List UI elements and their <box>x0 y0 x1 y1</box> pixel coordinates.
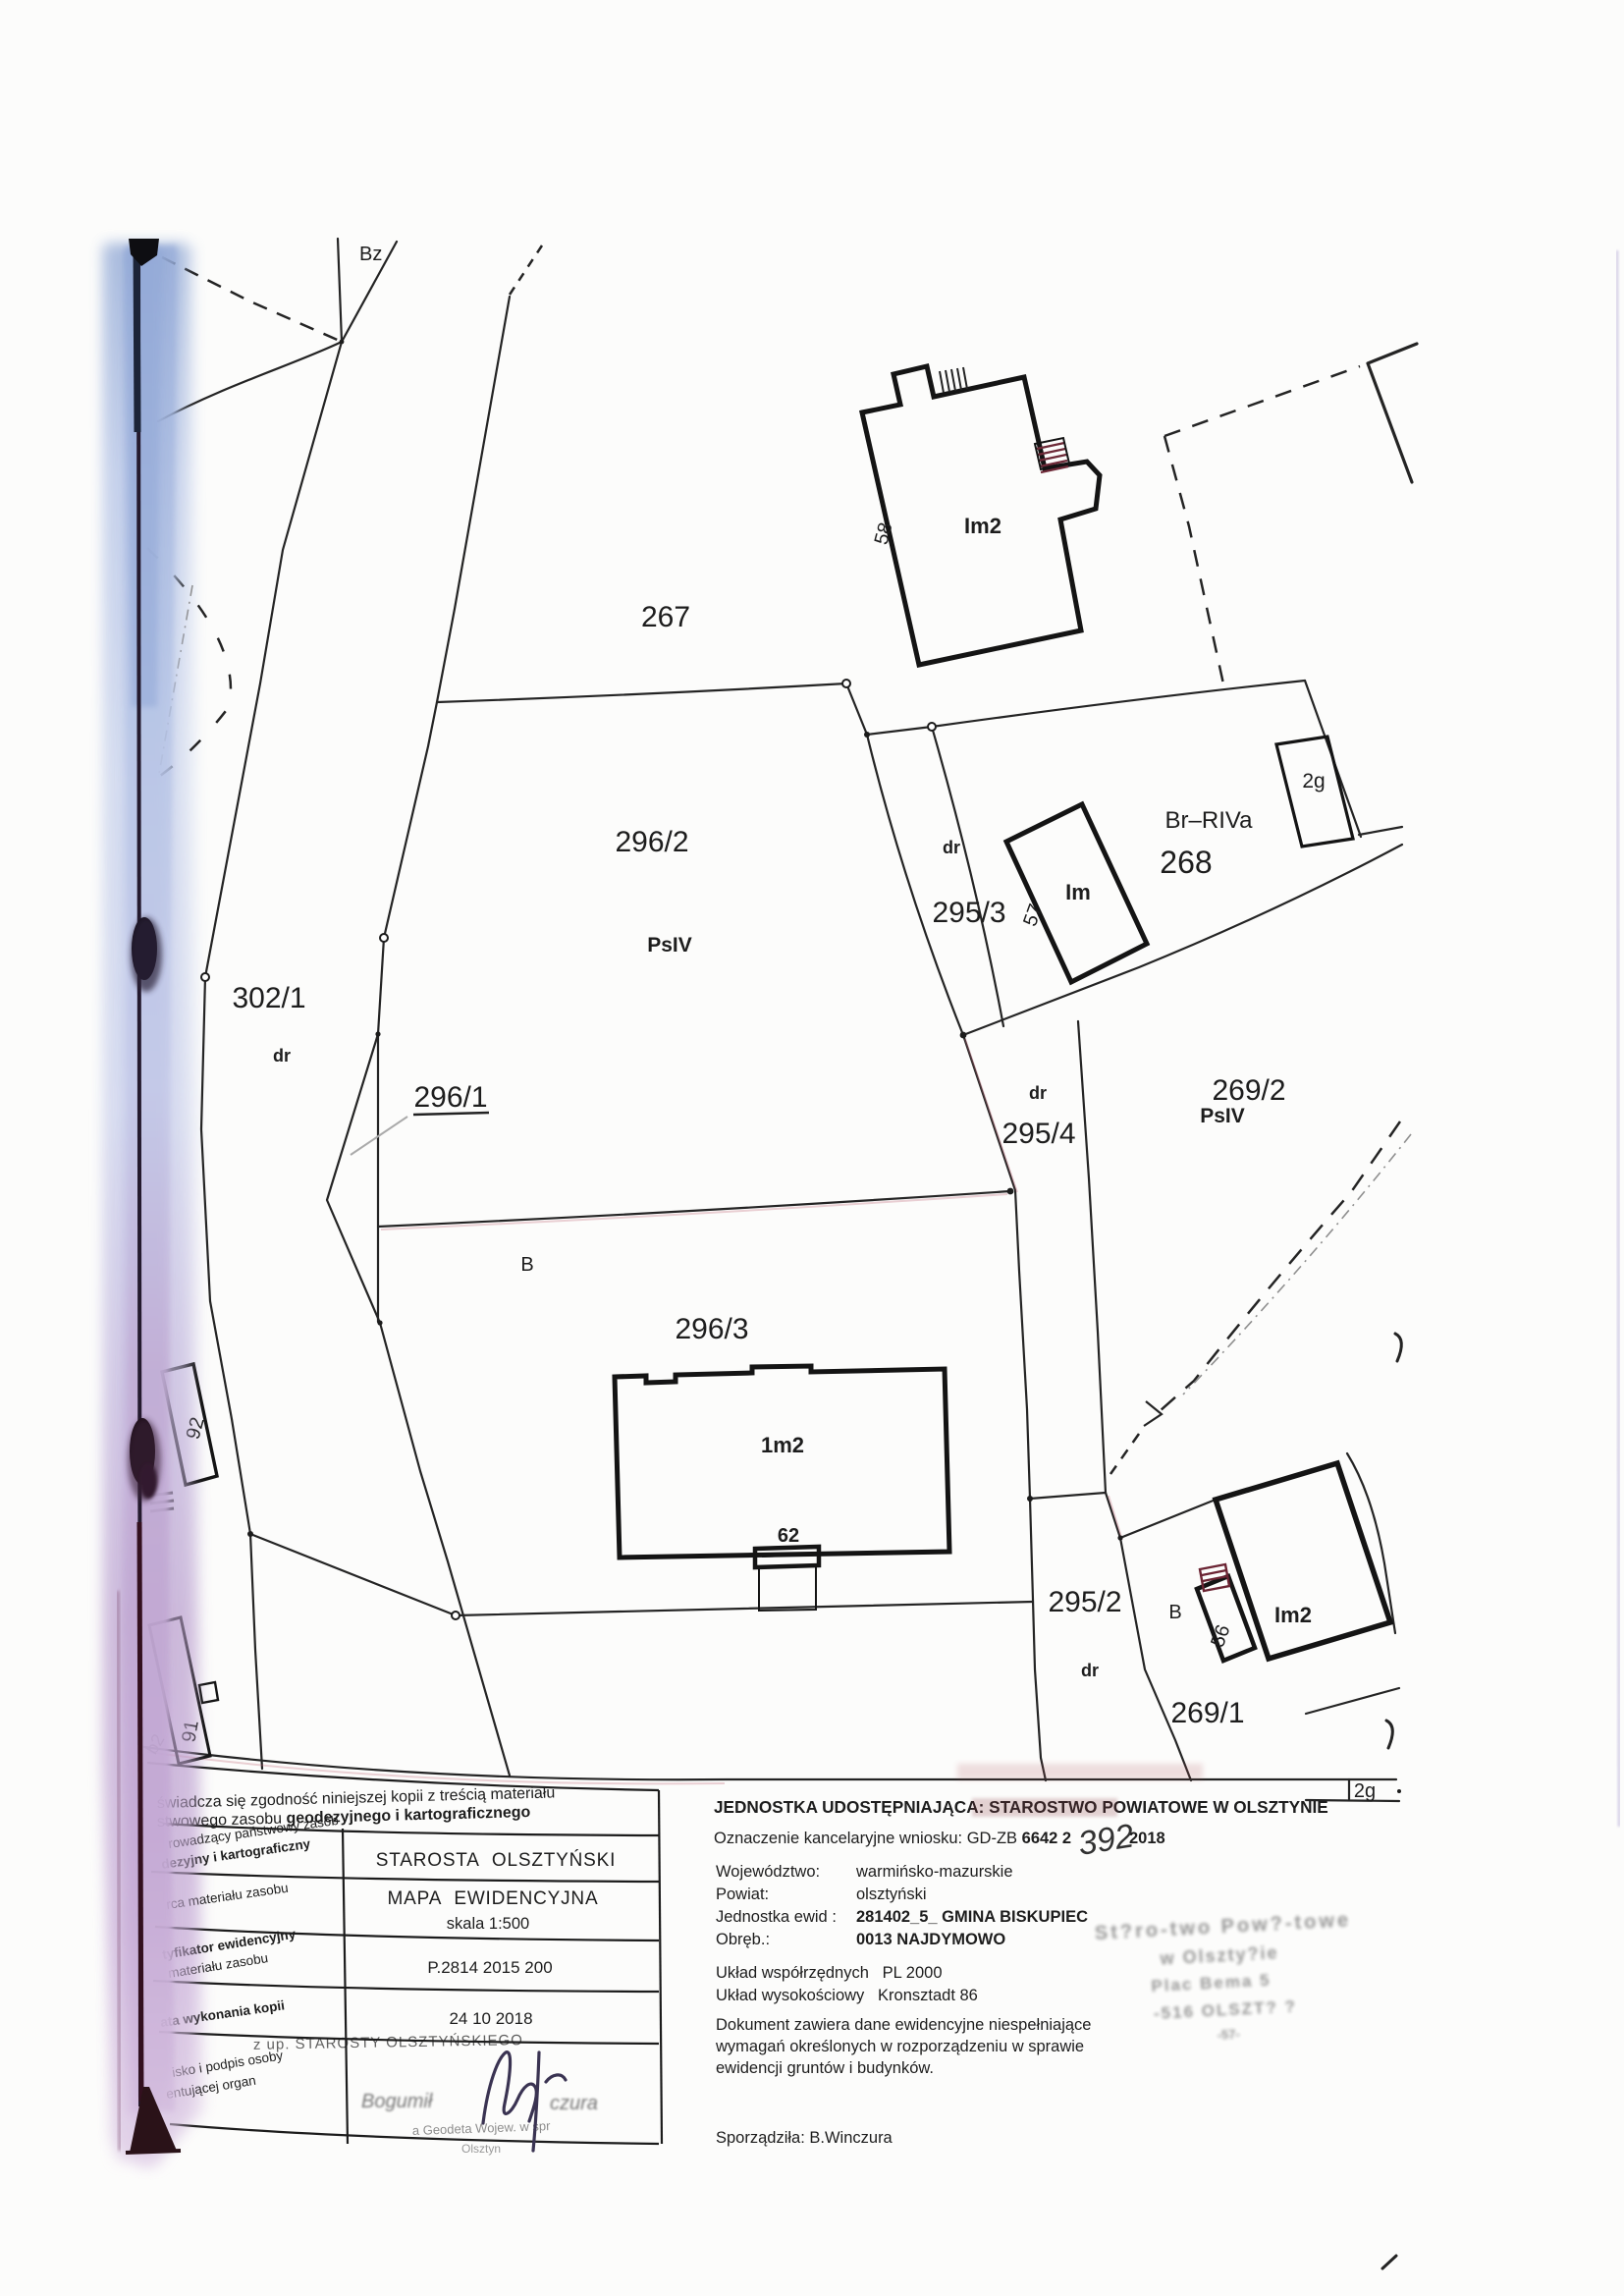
svg-text:Im2: Im2 <box>964 514 1001 538</box>
svg-text:Im2: Im2 <box>1274 1603 1312 1627</box>
svg-text:Oznaczenie kancelaryjne wniosk: Oznaczenie kancelaryjne wniosku: GD-ZB 6… <box>714 1830 1071 1847</box>
svg-text:Im: Im <box>1065 880 1091 904</box>
svg-text:296/3: 296/3 <box>675 1313 748 1345</box>
svg-text:2g: 2g <box>1302 770 1325 793</box>
svg-text:269/2: 269/2 <box>1212 1074 1285 1107</box>
svg-text:295/4: 295/4 <box>1001 1118 1075 1150</box>
svg-text:Olsztyn: Olsztyn <box>461 2142 501 2156</box>
svg-text:Układ współrzędnych PL 2000: Układ współrzędnych PL 2000 <box>716 1964 943 1982</box>
svg-text:-516 OLSZT? ?: -516 OLSZT? ? <box>1154 1996 1298 2023</box>
svg-text:Br–RIVa: Br–RIVa <box>1165 807 1254 834</box>
svg-text:w Olszty?ie: w Olszty?ie <box>1159 1942 1279 1968</box>
svg-text:warmińsko-mazurskie: warmińsko-mazurskie <box>855 1863 1013 1881</box>
svg-text:B: B <box>1168 1602 1181 1623</box>
svg-text:dr: dr <box>273 1046 291 1066</box>
svg-text:Powiat:: Powiat: <box>716 1886 769 1903</box>
svg-text:Układ wysokościowy Kronsztad: Układ wysokościowy Kronsztadt 86 <box>716 1987 978 2004</box>
svg-text:2g: 2g <box>1354 1780 1376 1802</box>
svg-text:Jednostka ewid :: Jednostka ewid : <box>716 1908 837 1926</box>
svg-text:267: 267 <box>641 601 690 633</box>
svg-text:czura: czura <box>550 2093 598 2114</box>
svg-text:dr: dr <box>943 838 960 857</box>
svg-text:295/2: 295/2 <box>1048 1586 1121 1618</box>
svg-text:269/1: 269/1 <box>1170 1697 1244 1729</box>
svg-text:392: 392 <box>1075 1817 1136 1862</box>
svg-text:1m2: 1m2 <box>761 1433 804 1457</box>
svg-text:Dokument zawiera dane ewidency: Dokument zawiera dane ewidencyjne niespe… <box>716 2016 1091 2034</box>
svg-text:-57-: -57- <box>1217 2026 1240 2042</box>
svg-text:24 10 2018: 24 10 2018 <box>449 2009 532 2028</box>
svg-text:62: 62 <box>778 1525 799 1547</box>
svg-text:0013 NAJDYMOWO: 0013 NAJDYMOWO <box>856 1931 1005 1948</box>
svg-text:268: 268 <box>1160 845 1212 880</box>
svg-text:B: B <box>520 1254 533 1276</box>
svg-text:296/2: 296/2 <box>615 826 688 858</box>
svg-text:Województwo:: Województwo: <box>716 1863 820 1881</box>
svg-text:296/1: 296/1 <box>413 1081 487 1114</box>
svg-text:skala 1:500: skala 1:500 <box>447 1915 529 1933</box>
svg-text:ewidencji gruntów i budynków.: ewidencji gruntów i budynków. <box>716 2059 934 2077</box>
svg-text:Obręb.:: Obręb.: <box>716 1931 770 1948</box>
svg-text:Bogumił: Bogumił <box>361 2091 433 2112</box>
svg-text:dr: dr <box>1081 1661 1099 1680</box>
svg-text:MAPA EWIDENCYJNA: MAPA EWIDENCYJNA <box>388 1888 599 1909</box>
svg-text:Plac Bema 5: Plac Bema 5 <box>1151 1971 1272 1995</box>
svg-text:olsztyński: olsztyński <box>856 1886 927 1903</box>
svg-text:Bz: Bz <box>359 244 382 265</box>
svg-text:St?ro-two Pow?-towe: St?ro-two Pow?-towe <box>1094 1909 1351 1944</box>
svg-text:281402_5_ GMINA BISKUPIEC: 281402_5_ GMINA BISKUPIEC <box>856 1908 1088 1926</box>
svg-text:STAROSTA OLSZTYŃSKI: STAROSTA OLSZTYŃSKI <box>376 1850 616 1871</box>
svg-text:Sporządziła: B.Winczura: Sporządziła: B.Winczura <box>716 2129 893 2147</box>
svg-text:PsIV: PsIV <box>1200 1105 1245 1127</box>
svg-text:295/3: 295/3 <box>932 897 1005 929</box>
svg-text:302/1: 302/1 <box>232 982 305 1014</box>
svg-text:dr: dr <box>1029 1083 1047 1103</box>
svg-text:wymagań określonych w rozporzą: wymagań określonych w rozporządzeniu w s… <box>715 2038 1084 2055</box>
svg-text:PsIV: PsIV <box>647 934 692 957</box>
svg-text:P.2814 2015 200: P.2814 2015 200 <box>427 1958 552 1977</box>
svg-text:z up. STAROSTY OLSZTYŃSKIEGO: z up. STAROSTY OLSZTYŃSKIEGO <box>253 2032 523 2053</box>
